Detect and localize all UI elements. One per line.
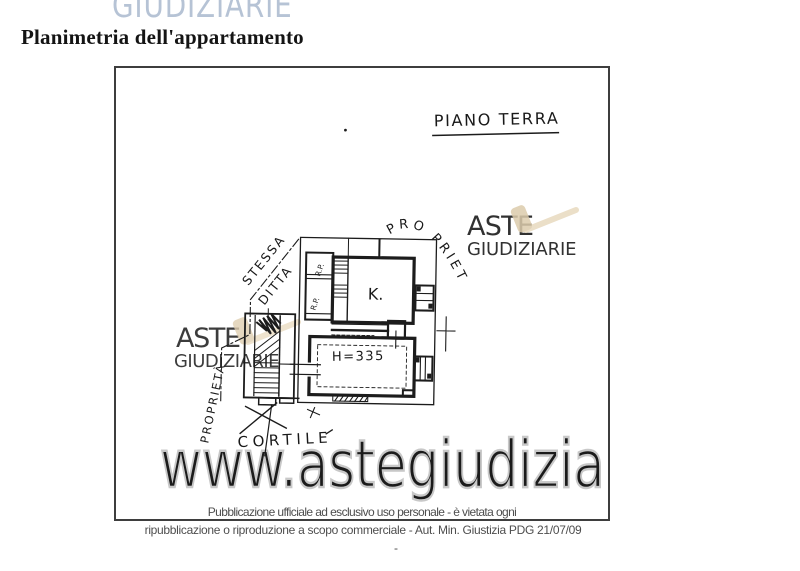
brand-suffix-text: GIUDIZIARIE xyxy=(467,239,577,260)
room-height-label: H=335 xyxy=(332,349,385,365)
kitchen-inner-wall xyxy=(347,257,348,322)
floor-label: PIANO TERRA xyxy=(434,109,558,131)
door-hatch-top xyxy=(334,261,347,273)
survey-cross-right xyxy=(437,317,456,351)
door-hatch-mid xyxy=(334,285,347,297)
floor-label-underline xyxy=(432,133,559,136)
window-lower xyxy=(414,356,432,380)
kitchen-label: K. xyxy=(368,285,384,304)
footer-disclaimer-line1: Pubblicazione ufficiale ad esclusivo uso… xyxy=(114,505,610,519)
corridor-line-2 xyxy=(332,330,388,331)
floor-label-group: PIANO TERRA xyxy=(432,109,560,136)
footer-disclaimer-line2: ripubblicazione o riproduzione a scopo c… xyxy=(63,523,663,537)
ink-dot xyxy=(344,129,347,132)
storage-bottom-label: R.P. xyxy=(309,296,322,311)
floor-plan-frame: www.astegiudiziarie.it ASTE GIUDIZIARIE … xyxy=(114,66,610,521)
brand-name-text: ASTE xyxy=(176,323,242,354)
clipped-brand-watermark: GIUDIZIARIE xyxy=(112,0,293,26)
floor-plan-drawing: K. H=335 R.P. R.P. STESSA DITTA PROPRIET… xyxy=(116,68,474,459)
window-upper xyxy=(415,285,433,310)
brand-watermark-right: ASTE GIUDIZIARIE xyxy=(467,204,577,260)
small-tick xyxy=(307,408,319,418)
document-page: { "header": { "clipped_watermark": "GIUD… xyxy=(0,0,800,571)
footer-dash-mark: - xyxy=(390,541,402,555)
floor-plan-scan: www.astegiudiziarie.it ASTE GIUDIZIARIE … xyxy=(116,68,608,519)
site-url-watermark: www.astegiudiziarie.it xyxy=(160,426,608,503)
property-right-arc-text: PRO PRIETÀ xyxy=(116,68,474,285)
property-right-label: PRO PRIETÀ xyxy=(116,68,474,285)
page-title: Planimetria dell'appartamento xyxy=(21,25,304,50)
